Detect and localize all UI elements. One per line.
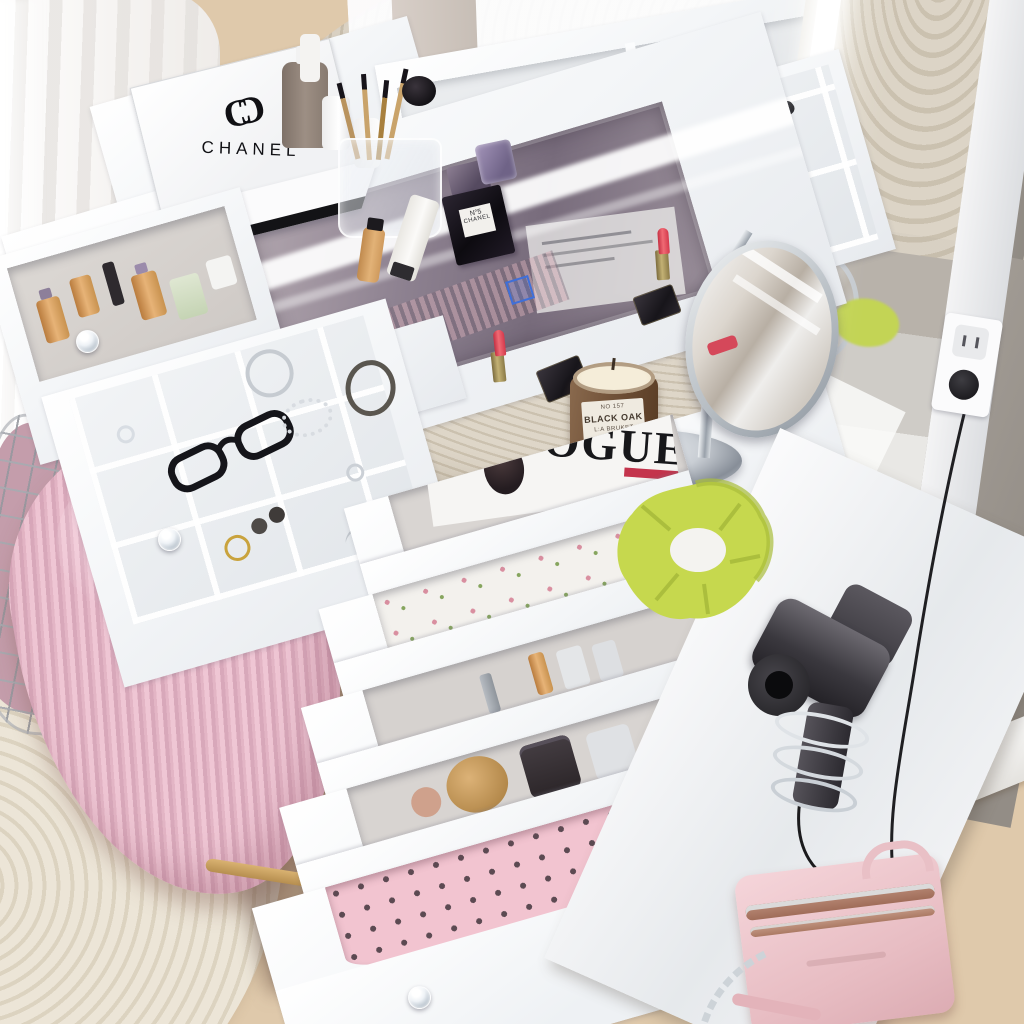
socket-slot bbox=[962, 335, 967, 346]
dryer-nozzle-hole bbox=[765, 671, 793, 699]
bag-chain-strap bbox=[671, 947, 784, 1024]
pink-crossbody-bag bbox=[732, 840, 960, 1024]
outlet-socket bbox=[951, 324, 990, 361]
scene-vanity-room: C C CHANEL N°5 CHANEL bbox=[0, 0, 1024, 1024]
power-plug bbox=[947, 368, 981, 402]
hair-scrunchie bbox=[612, 478, 780, 630]
socket-slot bbox=[975, 337, 980, 348]
dryer-nozzle-face bbox=[748, 654, 810, 716]
